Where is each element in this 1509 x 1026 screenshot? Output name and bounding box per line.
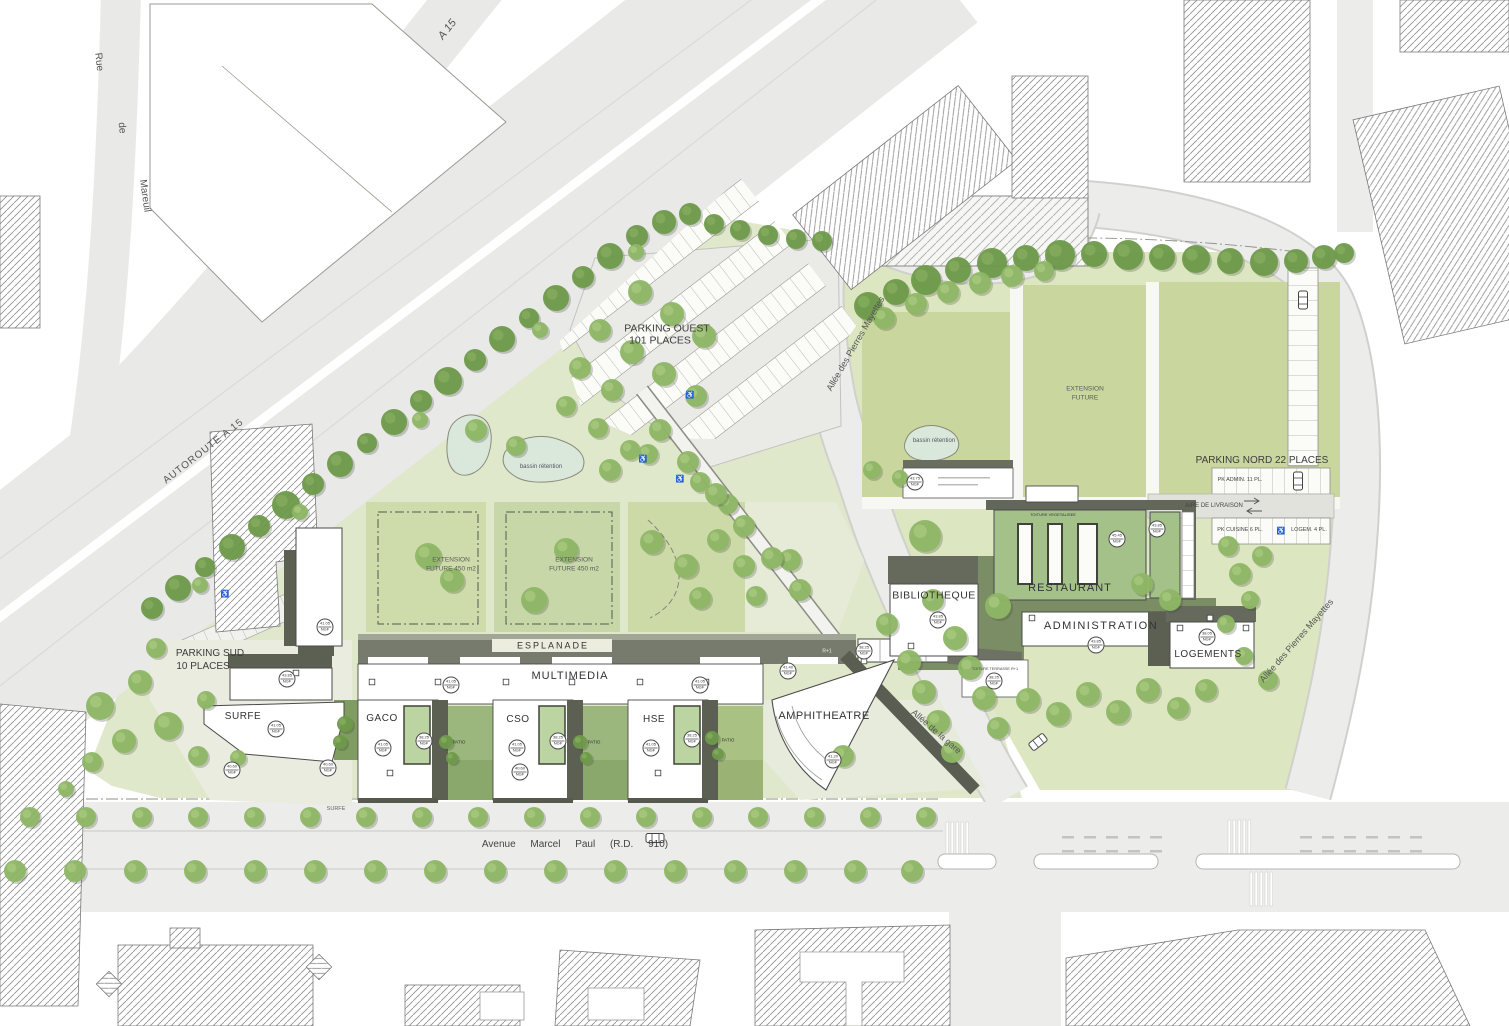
elevation-marker: 40.60NGF bbox=[512, 764, 529, 781]
elevation-marker: 45.45NGF bbox=[1109, 531, 1126, 548]
parking-ouest-label: PARKING OUEST bbox=[624, 323, 710, 334]
elevation-marker: 41.20NGF bbox=[825, 752, 842, 769]
car-icon bbox=[1299, 291, 1308, 309]
road-label-de: de bbox=[115, 122, 127, 134]
extension-future-east-l2: FUTURE bbox=[1072, 396, 1098, 403]
pk-admin-label: PK ADMIN. 11 PL. bbox=[1218, 478, 1263, 484]
elevation-marker: 43.85NGF bbox=[279, 671, 296, 688]
site-plan: A 15 AUTOROUTE A 15 Rue de Mareuil PARKI… bbox=[0, 0, 1509, 1026]
parking-ouest-places: 101 PLACES bbox=[629, 335, 691, 346]
avenue-label: Avenue Marcel Paul (R.D. 910) bbox=[482, 840, 668, 851]
elevation-marker: 38.25NGF bbox=[550, 733, 567, 750]
extension-future-west2-l1: EXTENSION bbox=[555, 558, 593, 565]
elevation-marker: 41.05NGF bbox=[443, 677, 460, 694]
wheelchair-icon: ♿ bbox=[676, 475, 685, 483]
aire-livraison-label: AIRE DE LIVRAISON bbox=[1185, 503, 1243, 509]
restaurant-label: RESTAURANT bbox=[1028, 583, 1112, 595]
car-icon bbox=[1294, 472, 1303, 490]
pk-cuisine-label: PK CUISINE 6 PL. bbox=[1217, 528, 1263, 534]
road-label-rue: Rue bbox=[92, 52, 104, 71]
wheelchair-icon: ♿ bbox=[221, 590, 230, 598]
elevation-marker: 40.60NGF bbox=[224, 762, 241, 779]
extension-future-west1-l1: EXTENSION bbox=[432, 558, 470, 565]
elevation-marker: 38.25NGF bbox=[986, 673, 1003, 690]
parking-nord-label: PARKING NORD 22 PLACES bbox=[1196, 456, 1329, 467]
toiture-vegetalisee-label: TOITURE VEGETALISEE bbox=[1030, 513, 1076, 517]
toiture-terrasse-label: TOITURE TERRASSE R+1 bbox=[972, 667, 1018, 671]
elevation-marker: 43.75NGF bbox=[907, 474, 924, 491]
elevation-marker: 43.85NGF bbox=[930, 612, 947, 629]
r-plus-1-label: R+1 bbox=[822, 649, 831, 654]
elevation-marker: 43.85NGF bbox=[1149, 521, 1166, 538]
elevation-marker: 41.05NGF bbox=[268, 721, 285, 738]
elevation-marker: 41.05NGF bbox=[509, 740, 526, 757]
amphitheatre-label: AMPHITHEATRE bbox=[778, 711, 869, 723]
elevation-marker: 38.25NGF bbox=[856, 643, 873, 660]
logements-label: LOGEMENTS bbox=[1174, 650, 1241, 661]
bassin-retention-west: bassin rétention bbox=[520, 464, 562, 470]
wheelchair-icon: ♿ bbox=[1277, 527, 1286, 535]
patio-label-gaco: PATIO bbox=[453, 741, 466, 746]
elevation-marker: 38.25NGF bbox=[416, 733, 433, 750]
elevation-marker: 41.05NGF bbox=[375, 740, 392, 757]
parking-sud-label: PARKING SUD bbox=[176, 649, 244, 660]
parking-sud-places: 10 PLACES bbox=[176, 662, 229, 673]
esplanade-label: ESPLANADE bbox=[517, 641, 589, 650]
wheelchair-icon: ♿ bbox=[686, 391, 695, 399]
bibliotheque-label: BIBLIOTHEQUE bbox=[892, 590, 976, 601]
cso-label: CSO bbox=[506, 715, 529, 726]
elevation-marker: 38.25NGF bbox=[684, 731, 701, 748]
elevation-marker: 40.60NGF bbox=[320, 760, 337, 777]
patio-label-hse: PATIO bbox=[722, 739, 735, 744]
elevation-marker: 41.05NGF bbox=[643, 740, 660, 757]
surfe-label: SURFE bbox=[225, 712, 261, 723]
surfe-path-label: SURFE bbox=[327, 807, 346, 813]
bassin-retention-east: bassin rétention bbox=[913, 438, 955, 444]
extension-future-west1-l2: FUTURE 450 m2 bbox=[426, 567, 476, 574]
extension-future-east-l1: EXTENSION bbox=[1066, 387, 1104, 394]
elevation-marker: 41.05NGF bbox=[317, 619, 334, 636]
base-map bbox=[0, 0, 1509, 1026]
elevation-marker: 41.40NGF bbox=[780, 663, 797, 680]
multimedia-label: MULTIMEDIA bbox=[531, 671, 608, 683]
elevation-marker: 38.05NGF bbox=[1199, 629, 1216, 646]
extension-future-west2-l2: FUTURE 450 m2 bbox=[549, 567, 599, 574]
elevation-marker: 41.05NGF bbox=[692, 677, 709, 694]
patio-label-cso: PATIO bbox=[588, 741, 601, 746]
administration-label: ADMINISTRATION bbox=[1044, 621, 1158, 633]
wheelchair-icon: ♿ bbox=[639, 455, 648, 463]
gaco-label: GACO bbox=[366, 714, 397, 725]
logem-label: LOGEM. 4 PL. bbox=[1291, 528, 1327, 534]
elevation-marker: 43.85NGF bbox=[1088, 637, 1105, 654]
hse-label: HSE bbox=[643, 715, 665, 726]
